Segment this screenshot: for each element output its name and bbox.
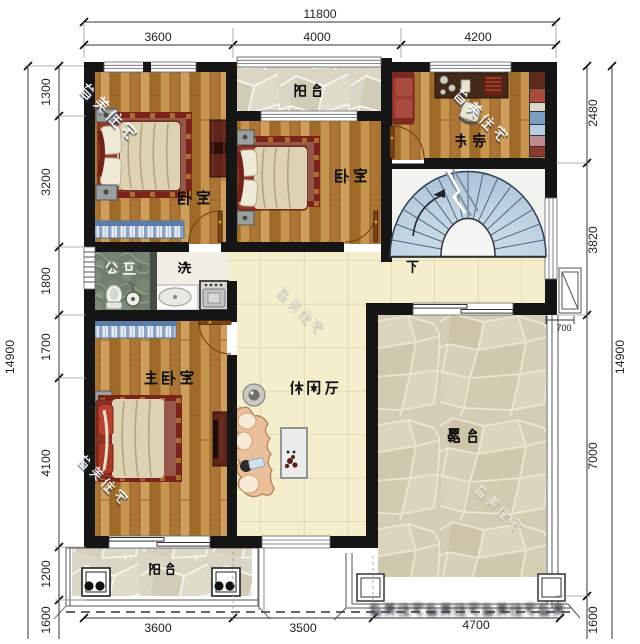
svg-text:4200: 4200	[464, 30, 492, 44]
svg-text:3500: 3500	[289, 621, 317, 635]
svg-text:14900: 14900	[3, 340, 17, 374]
svg-text:7000: 7000	[586, 442, 600, 470]
svg-text:4000: 4000	[303, 30, 331, 44]
svg-text:11800: 11800	[303, 7, 336, 21]
svg-text:4700: 4700	[462, 618, 490, 632]
svg-text:1200: 1200	[39, 560, 53, 588]
svg-text:1300: 1300	[39, 78, 53, 106]
svg-text:1600: 1600	[586, 606, 600, 634]
svg-text:3600: 3600	[144, 30, 172, 44]
svg-text:14900: 14900	[613, 340, 627, 374]
svg-text:3200: 3200	[39, 168, 53, 196]
svg-text:700: 700	[556, 323, 571, 333]
svg-text:1700: 1700	[39, 333, 53, 361]
svg-text:1600: 1600	[39, 606, 53, 634]
svg-text:3600: 3600	[144, 621, 172, 635]
svg-text:1800: 1800	[39, 267, 53, 295]
svg-text:2480: 2480	[586, 99, 600, 127]
svg-text:4100: 4100	[39, 449, 53, 477]
svg-text:3820: 3820	[586, 226, 600, 254]
